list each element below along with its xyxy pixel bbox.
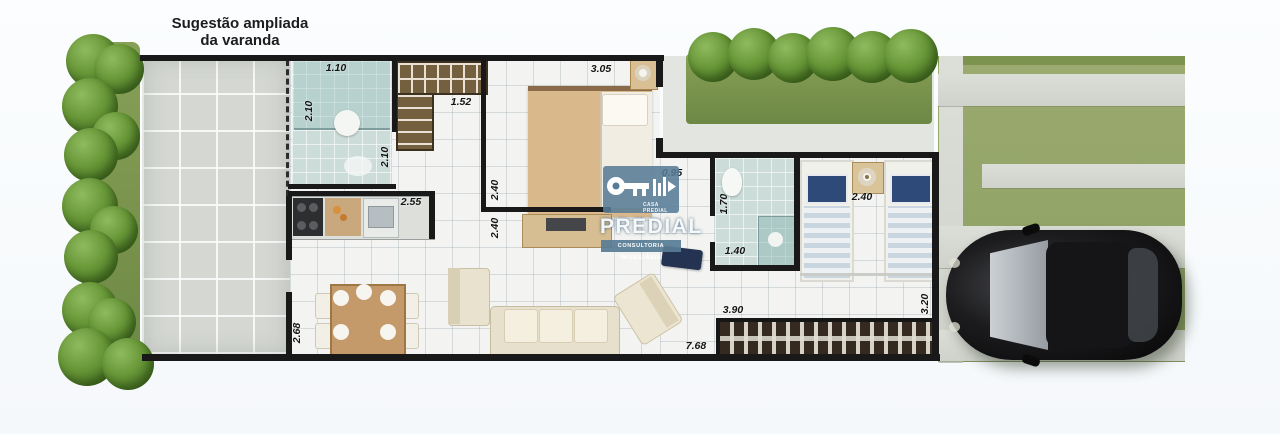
dim-bedroom1-depth: 2.40 [489,173,501,207]
bedroom2-blanket [888,206,934,278]
lawn-edge [938,56,1185,65]
sofa-cushion [504,309,538,343]
bedroom2-sliding-door [800,273,932,276]
tv [546,218,586,231]
wall [710,265,800,271]
dim-living-width: 2.40 [489,211,501,245]
wall [392,58,397,132]
bathroom1-toilet [344,156,372,176]
sofa-cushion [574,309,608,343]
dim-bedroom1-width: 3.05 [584,63,618,75]
wall [656,55,663,87]
car-windshield [990,240,1048,350]
plan-title-line2: da varanda [200,32,279,49]
dim-bath2-depth: 1.70 [718,187,730,221]
driveway-strip [982,164,1185,188]
wall [140,55,664,61]
pergola-deck [716,318,936,358]
key-house-icon [605,170,677,206]
tree-icon [64,128,118,182]
armchair-highback-back [448,268,460,324]
wall [429,191,435,239]
dim-hall-depth: 2.10 [379,140,391,174]
wall [481,55,486,212]
watermark-small-text: CASA PREDIAL [643,202,679,214]
stove-burner [297,221,306,230]
dim-bath2-width: 1.40 [718,245,752,257]
dim-pergola-depth: 3.20 [919,287,931,321]
tree-icon [102,338,154,390]
closet-shelves-side [396,93,434,151]
wall [142,354,940,361]
car-headlight [949,322,960,332]
dim-bath1-depth: 2.10 [303,94,315,128]
plate [380,290,396,306]
bedroom2-bed-left [800,160,854,282]
dim-bedroom2-width: 2.40 [845,191,879,203]
watermark-brand: PREDIAL [600,215,682,239]
bedroom2-blanket [804,206,850,278]
dim-closet-width: 1.52 [444,96,478,108]
dim-bath1-width: 1.10 [319,62,353,74]
fruit-bowl [333,206,341,214]
plan-title-line1: Sugestão ampliada [172,15,309,32]
kitchen-sink [368,206,394,228]
bedroom2-pillow [890,174,932,204]
plan-title: Sugestão ampliada da varanda [152,16,328,50]
dim-total-width: 7.68 [679,340,713,352]
wall [656,138,663,156]
closet-shelves-top [396,61,488,95]
varanda-expansion-dashed-line [286,60,289,196]
bedroom1-pillow [602,94,648,126]
wall [794,158,800,271]
tree-icon [64,230,118,284]
plate [333,324,349,340]
car-headlight [949,258,960,268]
floor-plan: Sugestão ampliada da varanda [0,0,1280,434]
fruit-bowl [340,214,347,221]
dim-pergola-width: 3.90 [716,304,750,316]
wall [932,152,939,361]
bedroom2-bed-right [884,160,938,282]
dim-varanda-depth: 2.68 [291,316,303,350]
bathroom1-sink [334,110,360,136]
sofa-cushion [539,309,573,343]
plate [380,324,396,340]
wall [286,196,292,260]
stove-burner [297,203,306,212]
bedroom1-lamp [635,65,651,81]
wall [710,158,715,216]
watermark-tagline: CONSULTORIA IMOBILIÁRIA [601,240,681,252]
stove-burner [309,221,318,230]
driveway-strip [938,74,1185,106]
watermark-logo-box: CASA PREDIAL [603,166,679,213]
car-roof [1046,242,1132,348]
wall [288,184,396,189]
car [946,230,1182,360]
car-rear-window [1128,248,1158,342]
bedroom2-lamp-knob [865,175,869,179]
bedroom2-pillow [806,174,848,204]
plate [333,290,349,306]
plate [356,284,372,300]
hedge-tree-icon [884,29,938,83]
stove-burner [309,203,318,212]
bathroom2-shower-drain [768,232,783,247]
dim-kitchen-width: 2.55 [394,196,428,208]
varanda-floor [142,56,290,356]
